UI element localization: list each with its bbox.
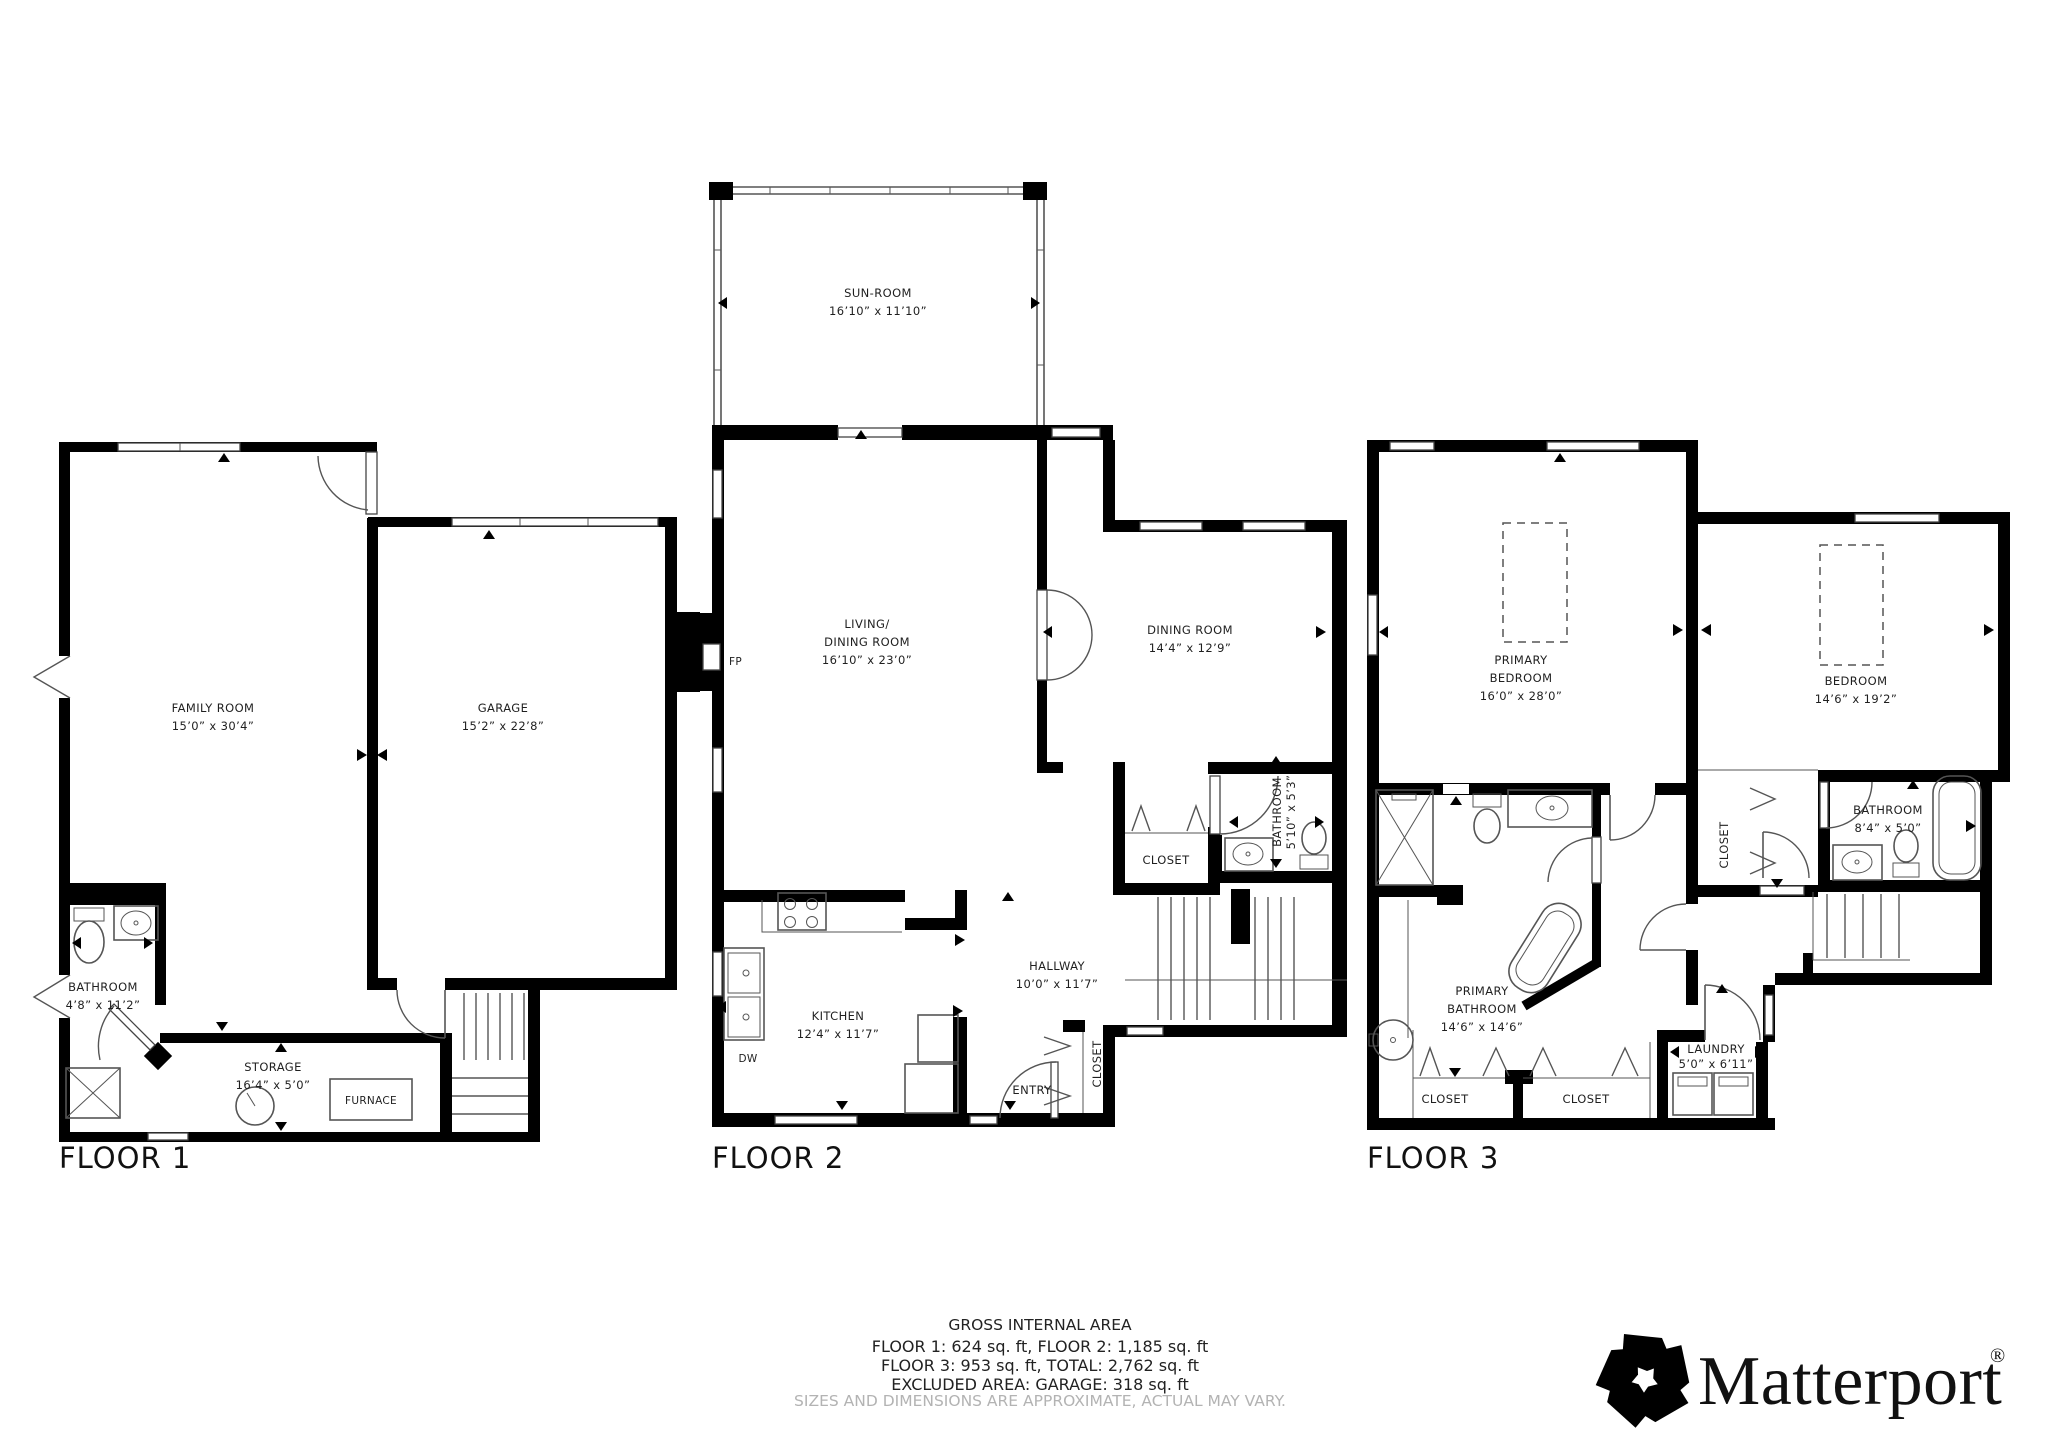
toilet-icon bbox=[1473, 794, 1501, 843]
floor1-title: FLOOR 1 bbox=[59, 1141, 191, 1175]
floor1-walls bbox=[59, 442, 700, 1142]
vanity-sink-icon bbox=[1508, 790, 1592, 827]
sunroom-label: SUN-ROOM bbox=[844, 286, 912, 300]
utility-meter-icon bbox=[236, 1087, 274, 1125]
floorplan-page: FAMILY ROOM 15’0” x 30’4” GARAGE 15’2” x… bbox=[0, 0, 2048, 1449]
footer-line-1: FLOOR 1: 624 sq. ft, FLOOR 2: 1,185 sq. … bbox=[872, 1337, 1208, 1356]
primary-bedroom-dims: 16’0” x 28’0” bbox=[1480, 689, 1562, 703]
living-room-dims: 16’10” x 23’0” bbox=[822, 653, 912, 667]
toilet-icon bbox=[1300, 822, 1328, 869]
toilet-icon bbox=[1893, 863, 1919, 877]
laundry-dims: 5’0” x 6’11” bbox=[1679, 1057, 1754, 1071]
hallway-label: HALLWAY bbox=[1029, 959, 1085, 973]
kitchen-dims: 12’4” x 11’7” bbox=[797, 1027, 879, 1041]
footer-title: GROSS INTERNAL AREA bbox=[948, 1316, 1132, 1334]
entry-label: ENTRY bbox=[1012, 1083, 1052, 1097]
walkin-closet-label: CLOSET bbox=[1717, 821, 1731, 869]
closet1-label: CLOSET bbox=[1421, 1092, 1469, 1106]
vanity-sink-icon bbox=[1833, 845, 1882, 880]
storage-label: STORAGE bbox=[244, 1060, 302, 1074]
toilet-icon bbox=[74, 908, 104, 963]
kitchen-counter bbox=[762, 900, 958, 1113]
floor3-title: FLOOR 3 bbox=[1367, 1141, 1499, 1175]
shower-icon bbox=[66, 1068, 120, 1118]
primary-bedroom-label-1: PRIMARY bbox=[1494, 653, 1548, 667]
kitchen-sink-icon bbox=[724, 948, 764, 1040]
garage-label: GARAGE bbox=[478, 701, 529, 715]
laundry-label: LAUNDRY bbox=[1687, 1042, 1745, 1056]
floor1-doors bbox=[98, 452, 445, 1060]
dining-room-label: DINING ROOM bbox=[1147, 623, 1233, 637]
living-room-label-1: LIVING/ bbox=[844, 617, 889, 631]
fireplace-label: FP bbox=[729, 656, 742, 668]
footer-line-2: FLOOR 3: 953 sq. ft, TOTAL: 2,762 sq. ft bbox=[881, 1356, 1199, 1375]
floor2-title: FLOOR 2 bbox=[712, 1141, 844, 1175]
entry-closet-label: CLOSET bbox=[1090, 1040, 1104, 1088]
bathroom2-dims: 5’10” x 5’3” bbox=[1284, 775, 1298, 850]
matterport-logo: Matterport ® bbox=[1595, 1334, 2005, 1431]
floor2-labels: SUN-ROOM 16’10” x 11’10” LIVING/ DINING … bbox=[712, 286, 1298, 1175]
dining-room-dims: 14’4” x 12’9” bbox=[1149, 641, 1231, 655]
registered-trademark-icon: ® bbox=[1990, 1345, 2005, 1367]
washer-dryer-icon bbox=[1673, 1073, 1753, 1115]
shower-icon bbox=[1376, 790, 1433, 885]
bathroom2-label: BATHROOM bbox=[1270, 777, 1284, 847]
bathroom3-dims: 8’4” x 5’0” bbox=[1854, 821, 1921, 835]
primary-bathroom-label-2: BATHROOM bbox=[1447, 1002, 1517, 1016]
stairs-icon bbox=[1813, 892, 1910, 960]
bathroom1-dims: 4’8” x 11’2” bbox=[66, 998, 141, 1012]
dishwasher-label: DW bbox=[738, 1053, 757, 1065]
furnace-label: FURNACE bbox=[345, 1095, 397, 1107]
bedroom-dims: 14’6” x 19’2” bbox=[1815, 692, 1897, 706]
garage-dims: 15’2” x 22’8” bbox=[462, 719, 544, 733]
floor-3: PRIMARY BEDROOM 16’0” x 28’0” BEDROOM 14… bbox=[1367, 440, 2010, 1175]
family-room-dims: 15’0” x 30’4” bbox=[172, 719, 254, 733]
matterport-wordmark: Matterport bbox=[1698, 1343, 2002, 1420]
living-room-label-2: DINING ROOM bbox=[824, 635, 910, 649]
kitchen-label: KITCHEN bbox=[812, 1009, 865, 1023]
stairs-icon bbox=[452, 993, 528, 1114]
matterport-logo-icon bbox=[1595, 1334, 1696, 1431]
bathtub-icon bbox=[1502, 896, 1588, 1000]
bathroom1-label: BATHROOM bbox=[68, 980, 138, 994]
floor3-windows bbox=[1368, 442, 1939, 1035]
primary-bedroom-label-2: BEDROOM bbox=[1490, 671, 1553, 685]
bedroom-label: BEDROOM bbox=[1825, 674, 1888, 688]
floor-2: SUN-ROOM 16’10” x 11’10” LIVING/ DINING … bbox=[700, 182, 1347, 1175]
primary-bathroom-label-1: PRIMARY bbox=[1455, 984, 1509, 998]
floor3-labels: PRIMARY BEDROOM 16’0” x 28’0” BEDROOM 14… bbox=[1367, 653, 1923, 1175]
bathtub-icon bbox=[1933, 776, 1981, 880]
closet2-label: CLOSET bbox=[1562, 1092, 1610, 1106]
hallway-dims: 10’0” x 11’7” bbox=[1016, 977, 1098, 991]
bathroom3-label: BATHROOM bbox=[1853, 803, 1923, 817]
floor2-doors bbox=[1000, 590, 1278, 1118]
bathroom-sink-icon bbox=[1225, 838, 1273, 871]
floor-1: FAMILY ROOM 15’0” x 30’4” GARAGE 15’2” x… bbox=[34, 442, 700, 1175]
floorplan-canvas: FAMILY ROOM 15’0” x 30’4” GARAGE 15’2” x… bbox=[0, 0, 2048, 1449]
sunroom-dims: 16’10” x 11’10” bbox=[829, 304, 927, 318]
primary-bathroom-dims: 14’6” x 14’6” bbox=[1441, 1020, 1523, 1034]
floor1-labels: FAMILY ROOM 15’0” x 30’4” GARAGE 15’2” x… bbox=[59, 701, 544, 1175]
footer-area-summary: GROSS INTERNAL AREA FLOOR 1: 624 sq. ft,… bbox=[794, 1316, 1286, 1410]
footer-disclaimer: SIZES AND DIMENSIONS ARE APPROXIMATE, AC… bbox=[794, 1392, 1286, 1410]
sink-icon bbox=[114, 906, 158, 940]
family-room-label: FAMILY ROOM bbox=[172, 701, 255, 715]
fireplace-icon bbox=[703, 644, 720, 670]
closet-label: CLOSET bbox=[1142, 853, 1190, 867]
storage-dims: 16’4” x 5’0” bbox=[236, 1078, 311, 1092]
